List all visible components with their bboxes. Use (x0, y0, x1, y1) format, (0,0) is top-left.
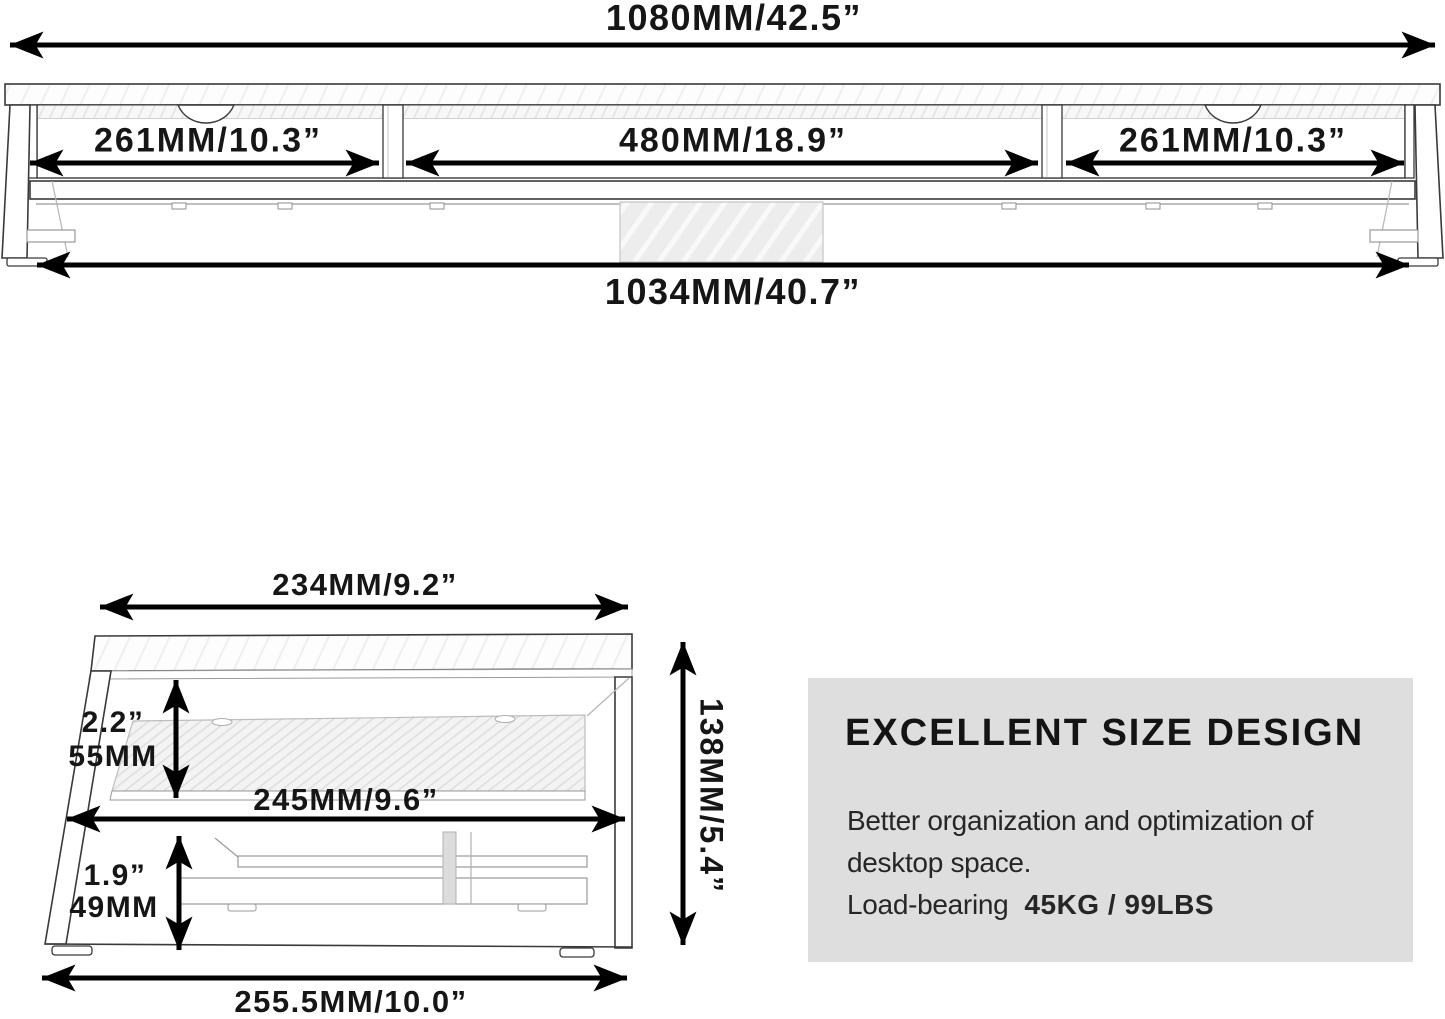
info-box-body: Better organization and optimization of … (847, 800, 1313, 926)
side-right-wall (615, 677, 632, 948)
divider-left (383, 105, 403, 178)
info-box: EXCELLENT SIZE DESIGN Better organizatio… (808, 678, 1413, 962)
right-leg-crossbar (1370, 230, 1418, 242)
info-body-line1: Better organization and optimization of (847, 800, 1313, 842)
side-left-foot (52, 946, 92, 955)
right-end-wall (1405, 105, 1414, 178)
side-middle-shelf (112, 715, 585, 791)
load-bearing-label: Load-bearing (847, 889, 1008, 920)
shelf-bar (30, 181, 1415, 199)
center-support (620, 202, 823, 262)
side-rear-bar (238, 856, 587, 867)
right-leg (1415, 105, 1443, 258)
side-center-strut (443, 832, 456, 904)
left-leg-crossbar (27, 230, 75, 242)
label-right-section: 261MM/10.3” (1119, 122, 1347, 161)
load-bearing-value: 45KG / 99LBS (1024, 889, 1214, 920)
left-leg (2, 105, 30, 258)
label-base-width: 1034MM/40.7” (605, 271, 861, 313)
label-lower-gap-in: 1.9” (84, 859, 147, 893)
label-middle-width: 245MM/9.6” (253, 782, 439, 818)
label-middle-section: 480MM/18.9” (619, 122, 847, 161)
label-overall-height: 138MM/5.4” (693, 698, 730, 894)
info-box-title: EXCELLENT SIZE DESIGN (845, 712, 1364, 755)
label-left-section: 261MM/10.3” (94, 122, 322, 161)
divider-right (1042, 105, 1062, 178)
side-top-slab (91, 634, 632, 671)
info-body-line2: desktop space. (847, 842, 1313, 884)
top-slab (5, 84, 1440, 105)
product-dimension-sheet: 1080MM/42.5” 261MM/10.3” 480MM/18.9” 261… (0, 0, 1445, 1019)
label-bottom-width: 255.5MM/10.0” (234, 984, 467, 1019)
label-overall-width: 1080MM/42.5” (606, 0, 862, 39)
label-side-top-width: 234MM/9.2” (272, 567, 458, 603)
side-right-foot (560, 948, 594, 957)
info-body-line3: Load-bearing45KG / 99LBS (847, 884, 1313, 926)
label-upper-gap-mm: 55MM (68, 740, 157, 774)
label-lower-gap-mm: 49MM (69, 891, 158, 925)
label-upper-gap-in: 2.2” (82, 706, 145, 740)
side-bottom-board (178, 878, 587, 904)
